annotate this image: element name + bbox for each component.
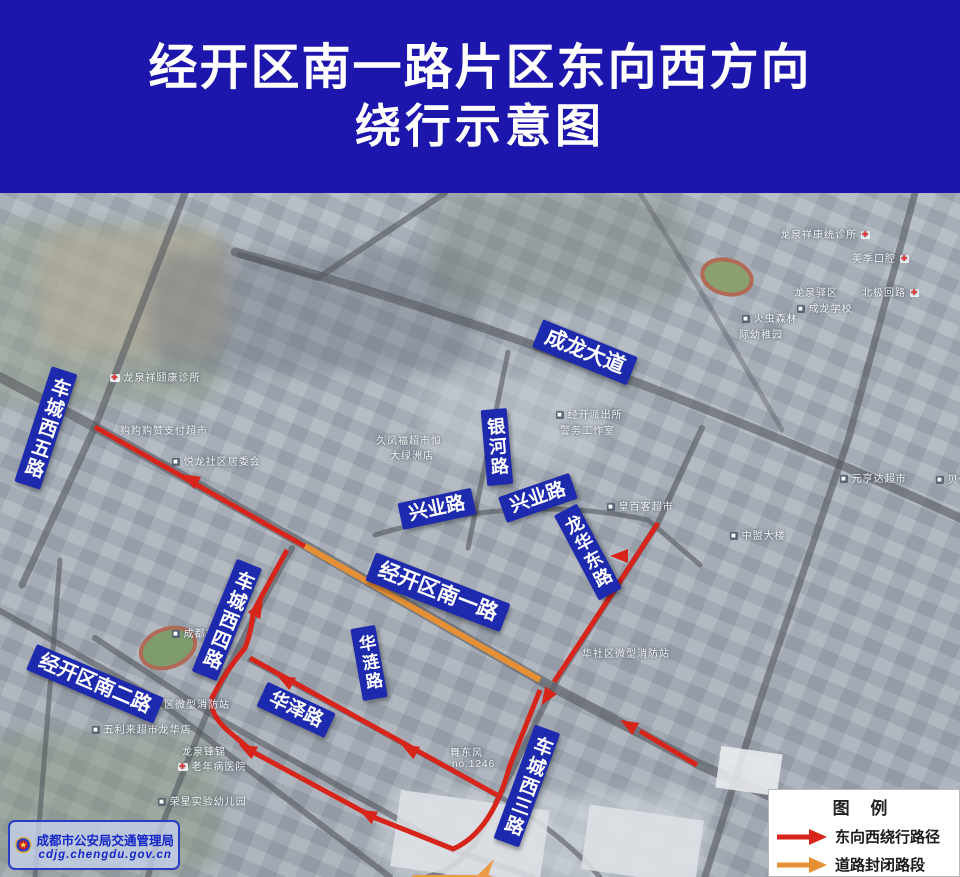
map-place-text: 购购购赞支付超市 [120,422,208,437]
map-place-text: ■ 皇百客超市 [607,498,674,513]
poi-icon: ■ [172,458,180,466]
map-place-text: 美季口腔 ✚ [852,250,909,265]
agency-name: 成都市公安局交通管理局 [36,830,174,849]
page-title-line1: 经开区南一路片区东向西方向 [148,44,811,93]
legend-row-detour: 东向西绕行路径 [775,826,953,847]
red-arrow-icon [775,829,827,845]
poi-icon: ■ [172,630,180,638]
hospital-cross-icon: ✚ [910,289,920,297]
map-place-text: no.1246 [452,759,495,770]
route-arrowhead [356,803,378,824]
map-place-text: ■ 火虫森林 [742,310,798,325]
legend-label-closed: 道路封闭路段 [835,854,925,875]
map-place-text: 警务工作室 [560,422,615,437]
detour-route-east [617,714,697,765]
hospital-cross-icon: ✚ [861,231,871,239]
map-place-text: ■ 元亨达超市 [840,470,907,485]
map-place-text: ✚ 龙泉祥颐康诊所 [110,369,200,384]
detour-notice-infographic: 经开区南一路片区东向西方向 绕行示意图 [0,0,960,877]
legend-label-detour: 东向西绕行路径 [835,826,940,847]
map-place-text: ■ 成龙学校 [797,300,853,315]
poi-icon: ■ [607,503,615,511]
route-arrowhead [610,549,628,563]
map-place-text: ✚ 老年病医院 [178,758,246,773]
map-place-text: 北极回路 ✚ [862,284,919,299]
map-place-text: 龙泉锋锦 [182,743,226,758]
poi-icon: ■ [556,411,564,419]
map-place-text: ■ 贝佳 [936,471,960,486]
page-title-line2: 绕行示意图 [355,103,605,149]
poi-icon: ■ [936,476,944,484]
map-place-text: ■ 荣星实验幼儿园 [158,793,247,808]
route-arrowhead [617,714,640,735]
map-place-text: 际幼稚园 [739,326,783,341]
legend: 图 例 东向西绕行路径 道路封闭路段 [768,789,960,877]
orange-arrow-icon [775,857,827,873]
map-place-text: 社区微型消防站 [153,696,230,711]
hospital-cross-icon: ✚ [900,255,910,263]
detour-route-west [95,427,308,548]
legend-title: 图 例 [775,794,953,819]
agency-url: cdjg.chengdu.gov.cn [39,849,172,861]
hospital-cross-icon: ✚ [178,763,188,771]
map-place-text: ■ 悦龙社区居委会 [172,453,261,468]
title-banner: 经开区南一路片区东向西方向 绕行示意图 [0,0,960,193]
satellite-map: ✚ 龙泉祥颐康诊所购购购赞支付超市■ 悦龙社区居委会久凤福超市恒大绿洲店■ 经开… [0,193,960,877]
hospital-cross-icon: ✚ [110,374,120,382]
map-place-text: 华社区微型消防站 [582,645,670,660]
map-place-text: 久凤福超市恒 [376,432,442,447]
poi-icon: ■ [92,726,100,734]
poi-icon: ■ [742,315,750,323]
police-emblem-icon [14,825,32,865]
legend-row-closed: 道路封闭路段 [775,854,953,875]
poi-icon: ■ [158,798,166,806]
map-place-text: 舞东风 [450,744,483,759]
map-place-text: 大绿洲店 [390,447,434,462]
map-place-text: ■ 中盟大楼 [730,527,786,542]
agency-badge: 成都市公安局交通管理局 cdjg.chengdu.gov.cn [8,820,180,870]
poi-icon: ■ [730,532,738,540]
map-place-text: ■ 经开派出所 [556,406,623,421]
map-place-text: 龙泉祥康统诊所 ✚ [780,226,870,241]
map-place-text: 龙泉驿区 [794,284,838,299]
poi-icon: ■ [797,305,805,313]
poi-icon: ■ [840,475,848,483]
map-place-text: ■ 五利来超市龙华店 [92,721,192,736]
